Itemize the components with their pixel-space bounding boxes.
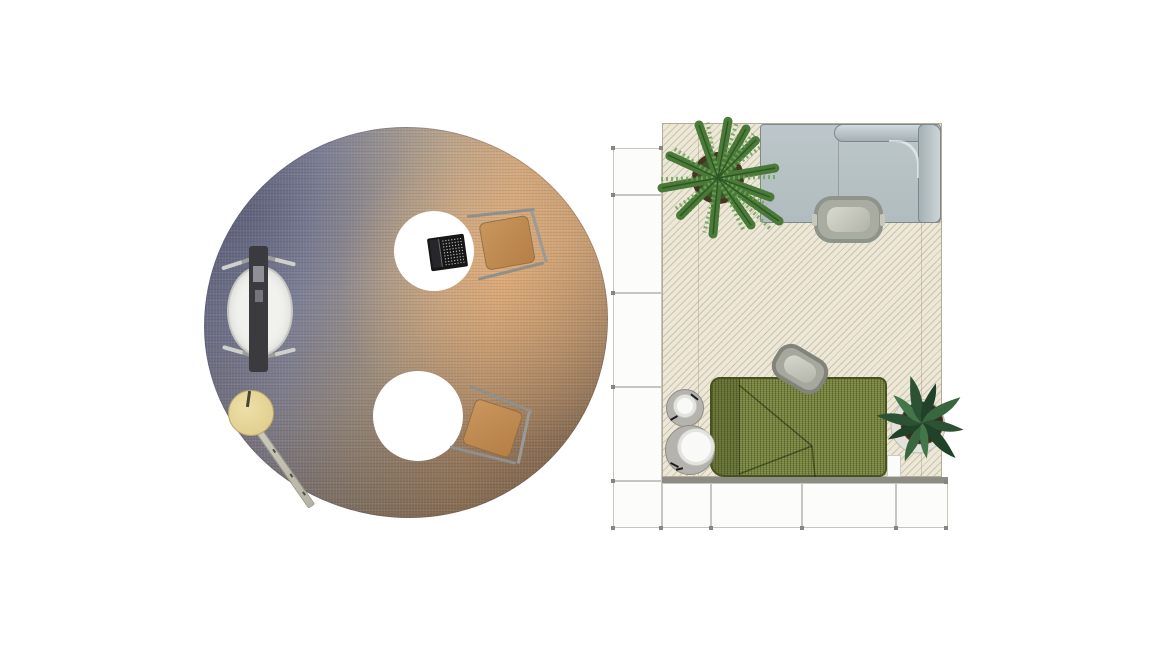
sofa-corner-fold <box>889 140 919 178</box>
chair-seat <box>478 215 536 271</box>
storage-cube[interactable] <box>613 481 662 528</box>
cube-connector-dot <box>611 291 615 295</box>
tropical-plant[interactable] <box>872 373 976 477</box>
storage-cube[interactable] <box>896 483 948 528</box>
tray-handle <box>670 415 678 421</box>
cube-connector-dot <box>611 479 615 483</box>
cube-connector-dot <box>944 480 948 484</box>
ottoman-cushion <box>827 207 870 232</box>
cube-connector-dot <box>659 526 663 530</box>
green-corner-sofa[interactable] <box>710 377 887 477</box>
plank-mark <box>302 491 306 495</box>
storage-cube[interactable] <box>613 293 662 387</box>
side-table-small[interactable] <box>666 389 704 427</box>
cube-connector-dot <box>709 526 713 530</box>
panel-slot <box>255 290 263 302</box>
floor-plan-canvas <box>0 0 1166 656</box>
plank-mark <box>289 473 293 477</box>
storage-cube[interactable] <box>711 483 802 528</box>
disc-stool[interactable] <box>228 390 274 436</box>
cube-connector-dot <box>611 193 615 197</box>
cube-connector-dot <box>944 526 948 530</box>
ottoman-cushion <box>780 352 819 387</box>
cube-connector-dot <box>611 385 615 389</box>
lounge-privacy-panel[interactable] <box>249 246 268 372</box>
laptop[interactable] <box>427 234 468 272</box>
sofa-back-cushion <box>918 124 941 223</box>
cube-connector-dot <box>611 526 615 530</box>
ottoman-handle <box>880 214 885 226</box>
fern-plant[interactable] <box>648 110 788 250</box>
storage-cube[interactable] <box>613 387 662 481</box>
storage-cube[interactable] <box>662 483 711 528</box>
plank-mark <box>272 449 276 453</box>
stool-slot <box>246 391 251 407</box>
laptop-keyboard <box>441 237 464 266</box>
cube-connector-dot <box>894 526 898 530</box>
side-chair-top[interactable] <box>465 201 546 282</box>
tray <box>678 429 714 465</box>
cube-connector-dot <box>800 526 804 530</box>
panel-slot <box>253 266 264 282</box>
ottoman-handle <box>812 214 817 226</box>
side-table-large[interactable] <box>665 425 715 475</box>
storage-cube[interactable] <box>802 483 896 528</box>
gray-ottoman[interactable] <box>814 196 883 243</box>
cube-connector-dot <box>611 146 615 150</box>
tray-handle <box>670 462 679 468</box>
sofa-seam-lines <box>712 379 889 479</box>
cup <box>674 395 696 417</box>
tray-handle <box>676 467 683 470</box>
